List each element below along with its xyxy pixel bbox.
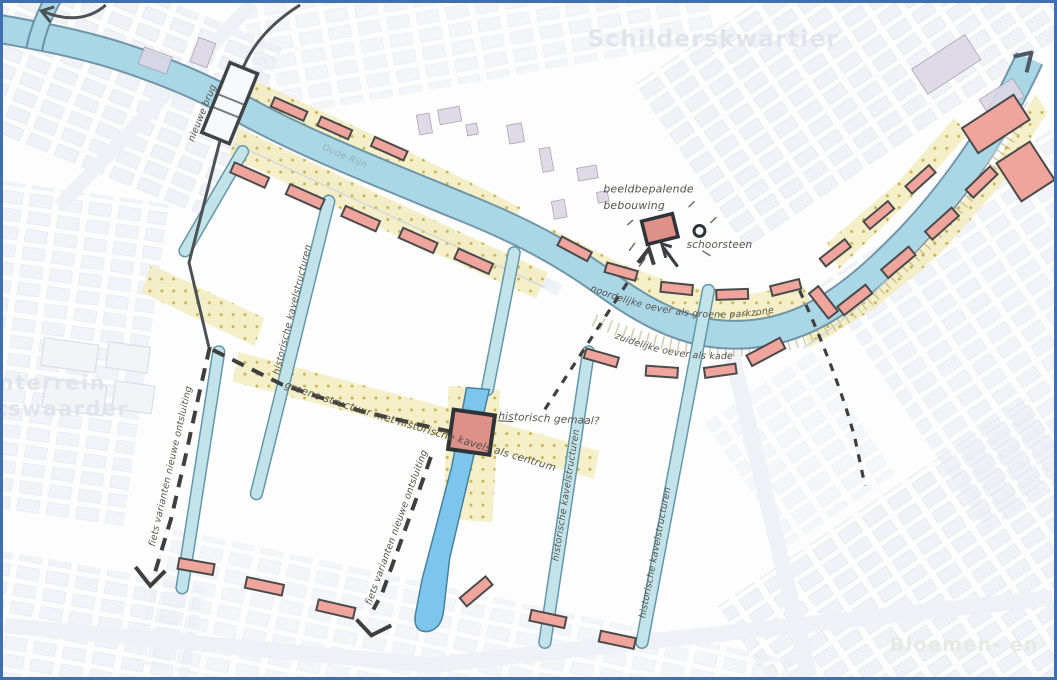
label-landmark-line2: bebouwing	[603, 199, 665, 212]
district-label-bottom-right: Bloemen- en	[890, 635, 1039, 656]
urban-plan-sketch-image: Schilderskwartier nterrein tswaarder Blo…	[0, 0, 1057, 680]
district-label-left-line2: tswaarder	[3, 396, 129, 420]
landmark-building-marker	[642, 214, 679, 245]
label-landmark-line1: beeldbepalende	[603, 182, 694, 195]
district-label-schilderskwartier: Schilderskwartier	[587, 27, 839, 53]
landmark-pointer-arrow-icon	[662, 244, 678, 267]
label-chimney: schoorsteen	[687, 239, 753, 251]
district-label-left-line1: nterrein	[3, 371, 106, 395]
arrowhead-sightline-icon	[638, 249, 654, 265]
chimney-marker	[694, 226, 705, 237]
concept-map-canvas: Schilderskwartier nterrein tswaarder Blo…	[3, 3, 1054, 677]
